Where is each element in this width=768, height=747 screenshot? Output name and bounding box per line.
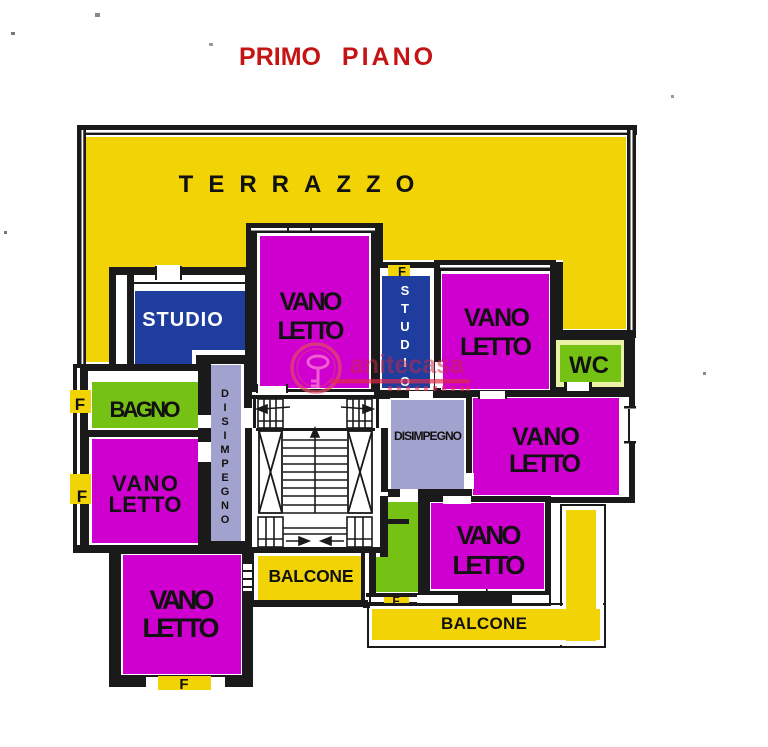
svg-text:S: S	[221, 416, 228, 428]
svg-text:anitecasa: anitecasa	[350, 349, 465, 379]
svg-text:LETTO: LETTO	[109, 492, 182, 517]
svg-text:VANO: VANO	[150, 585, 215, 615]
svg-text:LETTO: LETTO	[143, 613, 220, 643]
svg-text:VANO: VANO	[280, 288, 343, 316]
svg-text:D: D	[221, 388, 229, 400]
svg-text:I: I	[223, 402, 226, 414]
svg-text:BALCONE: BALCONE	[269, 566, 354, 586]
svg-text:VANO: VANO	[457, 520, 522, 550]
svg-text:PIANO: PIANO	[342, 43, 436, 71]
svg-text:F: F	[75, 395, 85, 414]
svg-text:LETTO: LETTO	[453, 550, 526, 580]
svg-text:TERRAZZO: TERRAZZO	[179, 171, 430, 198]
svg-text:F: F	[179, 676, 188, 693]
svg-text:T: T	[401, 301, 409, 316]
svg-text:DISIMPEGNO: DISIMPEGNO	[394, 429, 462, 443]
svg-text:M: M	[220, 444, 229, 456]
svg-text:O: O	[221, 514, 230, 526]
svg-text:PRIMO: PRIMO	[239, 43, 321, 71]
svg-text:U: U	[400, 319, 409, 334]
svg-text:VANO: VANO	[464, 304, 530, 332]
svg-text:F: F	[392, 594, 399, 608]
svg-text:LETTO: LETTO	[278, 317, 345, 345]
svg-text:BAGNO: BAGNO	[110, 397, 181, 422]
svg-text:P: P	[221, 458, 228, 470]
svg-text:LETTO: LETTO	[460, 333, 532, 361]
svg-text:LETTO: LETTO	[509, 450, 581, 478]
svg-text:BALCONE: BALCONE	[441, 614, 527, 633]
svg-text:F: F	[398, 264, 406, 279]
svg-text:STUDIO: STUDIO	[142, 309, 224, 331]
svg-text:VANO: VANO	[512, 423, 580, 451]
svg-text:WC: WC	[569, 352, 609, 379]
svg-text:N: N	[221, 500, 229, 512]
svg-text:I: I	[223, 430, 226, 442]
svg-text:E: E	[221, 472, 228, 484]
svg-text:F: F	[77, 487, 87, 506]
svg-text:S: S	[401, 283, 410, 298]
svg-text:G: G	[221, 486, 230, 498]
